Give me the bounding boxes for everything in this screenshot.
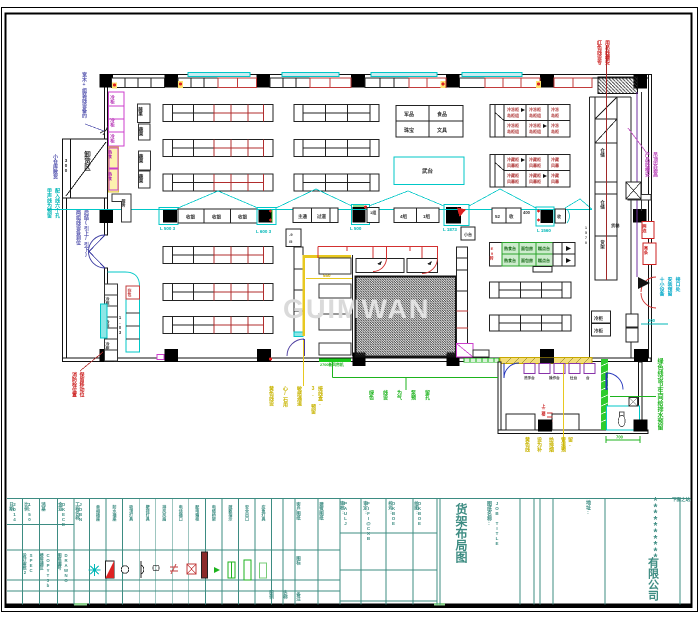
svg-text:收: 收 [557,213,561,219]
svg-text:建筑图纸: 建筑图纸 [319,501,325,521]
svg-text:货架: 货架 [600,239,606,251]
svg-text:L 600 3: L 600 3 [256,229,272,234]
svg-text:绿色: 绿色 [368,389,375,401]
svg-text:存包: 存包 [128,287,133,297]
svg-text:客户图纸: 客户图纸 [296,501,302,521]
svg-text:用吊线槽安: 用吊线槽安 [604,39,611,66]
svg-text:单相插座: 单相插座 [96,504,101,522]
svg-text:冷藏柜: 冷藏柜 [507,172,519,178]
svg-text:排风风扇: 排风风扇 [162,504,167,522]
svg-text:风幕: 风幕 [551,178,560,184]
svg-text:冷冻柜: 冷冻柜 [507,106,519,112]
svg-text:600: 600 [648,318,656,323]
svg-text:1组: 1组 [370,209,376,215]
svg-text:风幕柜: 风幕柜 [507,162,519,168]
svg-text:防水插座: 防水插座 [112,504,118,522]
svg-text:DRAWNO: DRAWNO [63,553,69,583]
svg-text:图标: 图标 [296,555,302,567]
svg-text:小仓库散货: 小仓库散货 [52,153,59,180]
svg-text:熟食: 熟食 [107,171,113,182]
svg-text:3. 预留: 3. 预留 [310,386,316,415]
svg-text:COPYT3b: COPYT3b [45,553,50,588]
svg-text:货架布局图: 货架布局图 [454,502,468,564]
svg-text:冷冻柜: 冷冻柜 [529,122,541,128]
svg-text:仓储: 仓储 [600,199,606,211]
svg-text:冷藏柜: 冷藏柜 [507,156,519,162]
svg-text:心/石用: 心/石用 [282,385,289,408]
svg-text:L 1873: L 1873 [443,227,457,232]
svg-text:管道预: 管道预 [560,436,566,453]
svg-text:岛柜: 岛柜 [551,128,559,134]
svg-text:冷冻: 冷冻 [551,106,559,112]
svg-text:绿色线设卫生间给排水预留: 绿色线设卫生间给排水预留 [656,357,663,431]
svg-text:熟食台: 熟食台 [504,257,516,263]
svg-text:配电箱柜: 配电箱柜 [195,504,200,522]
svg-text:2014: 2014 [12,502,17,522]
svg-text:壁挂灯具: 壁挂灯具 [146,504,151,522]
svg-text:蔬果: 蔬果 [138,106,144,118]
svg-text:L 500 3: L 500 3 [160,226,176,231]
svg-text:冷藏: 冷藏 [551,172,559,178]
svg-text:风幕柜: 风幕柜 [507,178,519,184]
svg-text:岛柜组: 岛柜组 [529,112,541,118]
svg-text:消防栓位置: 消防栓位置 [71,371,77,398]
svg-text:700: 700 [616,435,624,440]
svg-text:下图之站:: 下图之站: [672,496,692,503]
svg-text:52: 52 [495,214,501,219]
svg-text:蔬果: 蔬果 [138,153,144,165]
svg-text:留孔: 留孔 [424,389,430,401]
svg-text:熟食: 熟食 [107,149,113,160]
svg-text:文具: 文具 [437,127,447,134]
svg-text:冷柜: 冷柜 [110,117,116,129]
svg-text:1570: 1570 [584,225,589,245]
svg-text:两连: 两连 [642,223,648,234]
svg-text:蔬果: 蔬果 [138,126,144,138]
svg-text:珠宝: 珠宝 [404,127,414,134]
svg-text:洗手台: 洗手台 [524,375,535,380]
svg-text:小台: 小台 [464,231,472,237]
svg-text:E9转: E9转 [490,246,495,261]
svg-text:蔬果: 蔬果 [138,173,144,185]
svg-text:仓储: 仓储 [600,147,606,159]
svg-text:主通: 主通 [298,213,307,220]
svg-text:糕点台: 糕点台 [537,257,550,263]
svg-text:线设: 线设 [382,389,389,401]
svg-text:冷柜: 冷柜 [106,341,111,351]
svg-text:货梯: 货梯 [611,222,620,229]
svg-text:风幕: 风幕 [551,162,560,168]
svg-text:2700新风帘机: 2700新风帘机 [320,362,344,367]
svg-text:吊顶安装高: 吊顶安装高 [652,151,659,178]
svg-text:武台: 武台 [422,167,434,175]
svg-text:JOB TITLE: JOB TITLE [494,501,499,546]
svg-text:红色线设专: 红色线设专 [596,39,603,66]
svg-text:冷冻柜: 冷冻柜 [529,106,541,112]
svg-text:操作台: 操作台 [549,375,560,380]
svg-text:OKBOE: OKBOE [417,501,422,526]
svg-text:收银: 收银 [212,214,221,221]
svg-text:给排烟: 给排烟 [548,436,554,453]
svg-text:糕点台: 糕点台 [537,245,550,251]
svg-text:面包房: 面包房 [521,245,533,251]
svg-text:收银: 收银 [186,214,195,221]
svg-text:1组: 1组 [423,213,431,220]
svg-text:300: 300 [64,158,69,173]
svg-text:服务: 服务 [121,198,127,208]
svg-text:宽木+组装线设备约: 宽木+组装线设备约 [81,71,88,119]
svg-text:冷冻柜: 冷冻柜 [507,122,519,128]
svg-text:两组线设各到位: 两组线设各到位 [75,209,82,246]
svg-text:疏散指示: 疏散指示 [228,504,233,522]
svg-text:黄色线: 黄色线 [524,436,530,453]
svg-text:冷柜: 冷柜 [594,315,603,322]
svg-text:有限公司: 有限公司 [647,556,660,602]
svg-text:上二楼: 上二楼 [542,403,547,417]
svg-text:冷藏柜: 冷藏柜 [529,156,541,162]
svg-text:1:50: 1:50 [27,502,32,522]
svg-text:设为补: 设为补 [536,436,543,453]
svg-text:食品: 食品 [437,111,447,118]
svg-text:L 500: L 500 [350,226,362,231]
svg-text:图纸编号: 图纸编号 [57,552,63,572]
svg-text:军品: 军品 [404,111,414,118]
svg-text:4组: 4组 [400,213,408,220]
svg-text:SPEC: SPEC [29,553,34,573]
svg-text:岛柜组: 岛柜组 [507,128,519,134]
svg-text:保留移动位: 保留移动位 [78,371,85,398]
svg-text:L 1560: L 1560 [537,228,551,233]
svg-text:收: 收 [509,213,514,220]
svg-text:留.: 留. [567,436,573,448]
svg-text:FIFI@CXB: FIFI@CXB [365,501,371,541]
svg-text:岛柜组: 岛柜组 [507,112,519,118]
svg-text:吸顶灯具: 吸顶灯具 [128,504,134,522]
svg-text:冷柜: 冷柜 [110,133,116,145]
svg-text:地址:: 地址: [585,499,591,516]
svg-text:鸿基: 鸿基 [41,501,47,512]
svg-text:泵预: 泵预 [410,389,417,401]
svg-text:图纸名称:: 图纸名称: [486,500,492,527]
svg-text:后结(引上/引下): 后结(引上/引下) [83,209,89,258]
svg-text:400: 400 [523,210,531,215]
svg-text:图例: 图例 [269,589,275,601]
svg-text:冷柜: 冷柜 [110,94,116,106]
svg-text:电缆桥架: 电缆桥架 [212,504,217,522]
svg-text:应急灯具: 应急灯具 [262,504,267,522]
svg-text:灶台: 灶台 [569,375,578,380]
svg-text:收银: 收银 [238,214,247,221]
svg-text:接线盒.: 接线盒. [317,385,324,407]
svg-text:备注: 备注 [296,591,302,603]
svg-text:面包房: 面包房 [521,257,533,263]
svg-text:楼层铺位: 楼层铺位 [39,552,45,572]
svg-text:黄色线设: 黄色线设 [268,385,275,407]
svg-text:JOBN: JOBN [78,502,83,522]
svg-text:风幕柜: 风幕柜 [529,162,541,168]
svg-text:设计审核2: 设计审核2 [22,552,28,575]
svg-text:风幕柜: 风幕柜 [529,178,541,184]
svg-text:冷藏: 冷藏 [551,156,559,162]
svg-text:PAULJ: PAULJ [343,501,348,526]
svg-text:为气: 为气 [396,389,403,401]
svg-text:安装预留: 安装预留 [667,276,672,297]
svg-text:敏感通道: 敏感通道 [296,385,303,407]
svg-text:冷柜: 冷柜 [594,328,603,335]
svg-text:岛柜: 岛柜 [551,112,559,118]
svg-text:熟食台: 熟食台 [504,245,516,251]
svg-text:OKECD: OKECD [61,502,66,527]
svg-text:台: 台 [586,375,590,380]
svg-text:安全出口: 安全出口 [244,504,250,522]
svg-text:亮条: 亮条 [643,245,649,256]
svg-text:产品线槽安: 产品线槽安 [644,151,650,178]
svg-text:配入线六个孔: 配入线六个孔 [54,187,61,219]
svg-text:冷藏柜: 冷藏柜 [529,172,541,178]
svg-text:1.03: 1.03 [118,315,123,335]
svg-text:电话插口: 电话插口 [179,504,184,522]
svg-text:冷冻: 冷冻 [551,122,559,128]
svg-text:岛柜组: 岛柜组 [529,128,541,134]
svg-text:甲声线为预留: 甲声线为预留 [46,187,53,219]
svg-text:名称: 名称 [283,589,289,601]
svg-text:OKBOE: OKBOE [391,501,396,526]
svg-text:过道: 过道 [317,213,326,220]
